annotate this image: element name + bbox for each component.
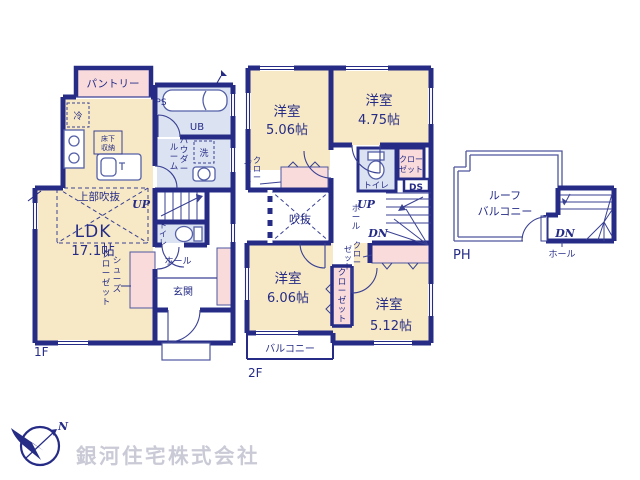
closet-right-label-2: ゼット — [344, 244, 352, 271]
room4-size-label: 5.12帖 — [370, 319, 412, 334]
compass-north-label: N — [57, 420, 69, 433]
closet-mid-label: クローゼット — [338, 268, 347, 325]
roof-balcony-label-2: バルコニー — [478, 205, 533, 218]
floorplan-drawing: パントリー PS UB 洗 パウダー ルーム 冷 床下 収納 上部吹抜 LDK … — [0, 0, 640, 480]
toilet-label-2f: トイレ — [363, 181, 389, 191]
floor-label-2f: 2F — [248, 366, 263, 380]
ds-label: DS — [409, 183, 423, 193]
room3-label: 洋室 — [275, 270, 302, 287]
closet-right-label-1: クロー — [353, 241, 361, 267]
room1-size-label: 5.06帖 — [266, 123, 308, 138]
room4-closet — [372, 245, 429, 263]
room1-label: 洋室 — [274, 103, 301, 120]
front-door — [168, 310, 200, 342]
closet-left-leader — [260, 182, 281, 184]
ub-label: UB — [190, 122, 204, 133]
upper-void-label: 上部吹抜 — [78, 190, 120, 203]
stove-burner-2 — [69, 153, 79, 163]
ldk-label: LDK — [75, 222, 112, 242]
hall-label-2f: ホール — [352, 204, 361, 232]
floor-label-ph: PH — [453, 248, 471, 263]
penthouse: ルーフ バルコニー DN ホール PH — [453, 151, 614, 263]
room3 — [247, 243, 333, 333]
bathtub — [163, 90, 227, 111]
company-name: 銀河住宅株式会社 — [76, 444, 260, 468]
room2-label: 洋室 — [366, 92, 393, 109]
room4-label: 洋室 — [376, 296, 403, 313]
closet-tr-label-2: ゼット — [399, 164, 423, 174]
dn-label-2f: DN — [367, 227, 389, 240]
toilet-bowl-1f — [176, 227, 193, 242]
powder-label-1: パウダー — [180, 136, 189, 175]
floorplan-page: パントリー PS UB 洗 パウダー ルーム 冷 床下 収納 上部吹抜 LDK … — [0, 0, 640, 480]
toilet-label-1f: トイレ — [159, 221, 167, 247]
fridge-label: 冷 — [73, 110, 82, 122]
shoes-label-2: クローゼット — [102, 250, 111, 308]
stairs-2f — [386, 197, 431, 245]
shoes-label-1: シューズ — [113, 256, 122, 295]
floor-2f: 洋室 5.06帖 洋室 4.75帖 クロー ゼット トイレ クロー ゼット DS… — [244, 65, 434, 380]
porch-step — [162, 343, 210, 360]
ph-door-leaf — [541, 216, 547, 241]
void-label: 吹抜 — [289, 212, 311, 226]
dn-label-ph: DN — [554, 227, 576, 240]
floor-1f: パントリー PS UB 洗 パウダー ルーム 冷 床下 収納 上部吹抜 LDK … — [28, 68, 236, 360]
footer: N 銀河住宅株式会社 — [11, 420, 260, 468]
room3-size-label: 6.06帖 — [267, 291, 309, 306]
stove-burner-1 — [69, 136, 79, 146]
room1-closet — [281, 167, 328, 188]
powder-label-2: ルーム — [170, 143, 179, 172]
entrance-label: 玄関 — [173, 285, 193, 298]
pantry-label: パントリー — [86, 78, 139, 90]
roof-balcony-label-1: ルーフ — [489, 189, 521, 202]
shoe-closet-box — [130, 252, 155, 308]
closet-left-label-1: クロー — [253, 156, 261, 182]
stairs-arrow-1f — [196, 194, 203, 203]
underfloor-label-1: 床下 — [101, 134, 115, 143]
balcony-label: バルコニー — [265, 343, 315, 355]
room4-extension — [333, 326, 354, 343]
hall-label-1f: ホール — [164, 256, 191, 267]
toilet-bowl-2f — [368, 161, 384, 179]
stairs-1f — [161, 192, 197, 220]
underfloor-label-2: 収納 — [101, 143, 115, 152]
hall-label-ph: ホール — [548, 249, 575, 260]
ps-label: PS — [155, 98, 166, 108]
kitchen-sink — [101, 158, 116, 176]
vent-flag — [221, 70, 227, 76]
washer-label: 洗 — [199, 147, 208, 159]
room2-size-label: 4.75帖 — [358, 113, 400, 128]
toilet-fixture-2f — [368, 152, 384, 179]
compass-icon — [11, 427, 59, 465]
up-label-1f: UP — [132, 198, 151, 211]
closet-tr-label-1: クロー — [399, 155, 423, 164]
toilet-tank-2f — [368, 152, 384, 160]
floor-label-1f: 1F — [34, 345, 49, 359]
toilet-tank-1f — [194, 227, 202, 241]
vanity-sink — [198, 168, 210, 180]
entrance-closet-strip — [217, 248, 231, 305]
closet-left-label-2: ゼット — [244, 159, 252, 186]
